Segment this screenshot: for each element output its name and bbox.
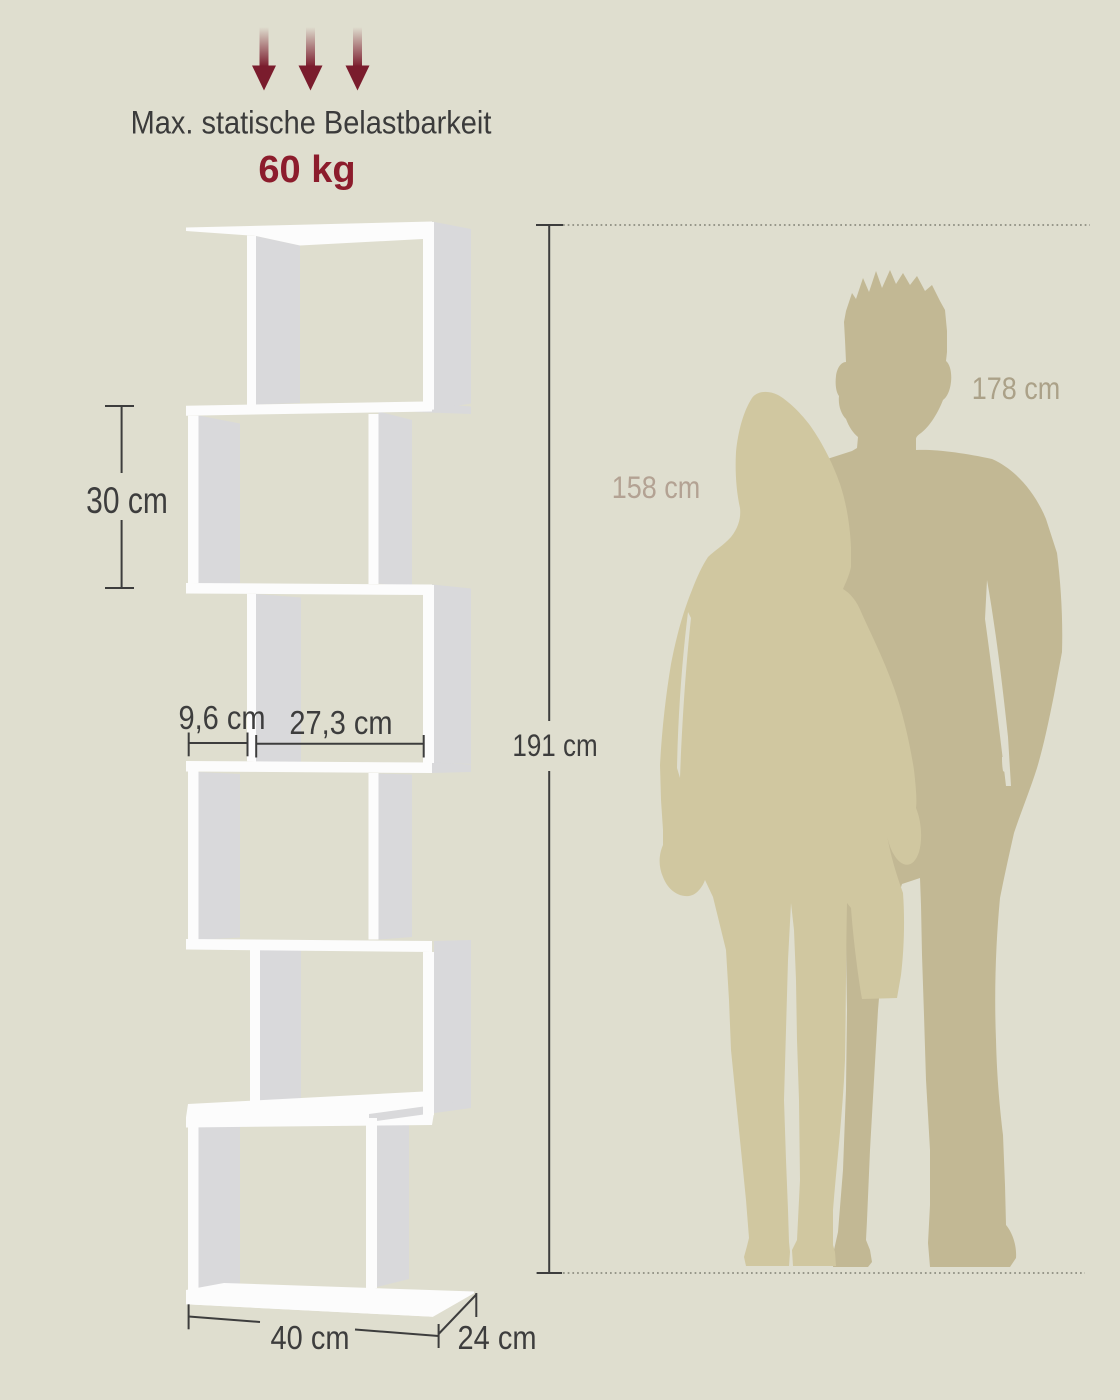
svg-text:191 cm: 191 cm — [512, 729, 597, 764]
svg-text:27,3 cm: 27,3 cm — [289, 704, 392, 741]
svg-text:24 cm: 24 cm — [458, 1319, 537, 1356]
svg-text:30 cm: 30 cm — [86, 480, 168, 522]
svg-text:60 kg: 60 kg — [258, 149, 355, 191]
svg-text:158 cm: 158 cm — [612, 471, 700, 505]
svg-text:9,6 cm: 9,6 cm — [178, 699, 265, 736]
svg-text:178 cm: 178 cm — [972, 372, 1060, 406]
svg-text:40 cm: 40 cm — [271, 1319, 350, 1356]
svg-text:Max. statische Belastbarkeit: Max. statische Belastbarkeit — [131, 104, 492, 141]
